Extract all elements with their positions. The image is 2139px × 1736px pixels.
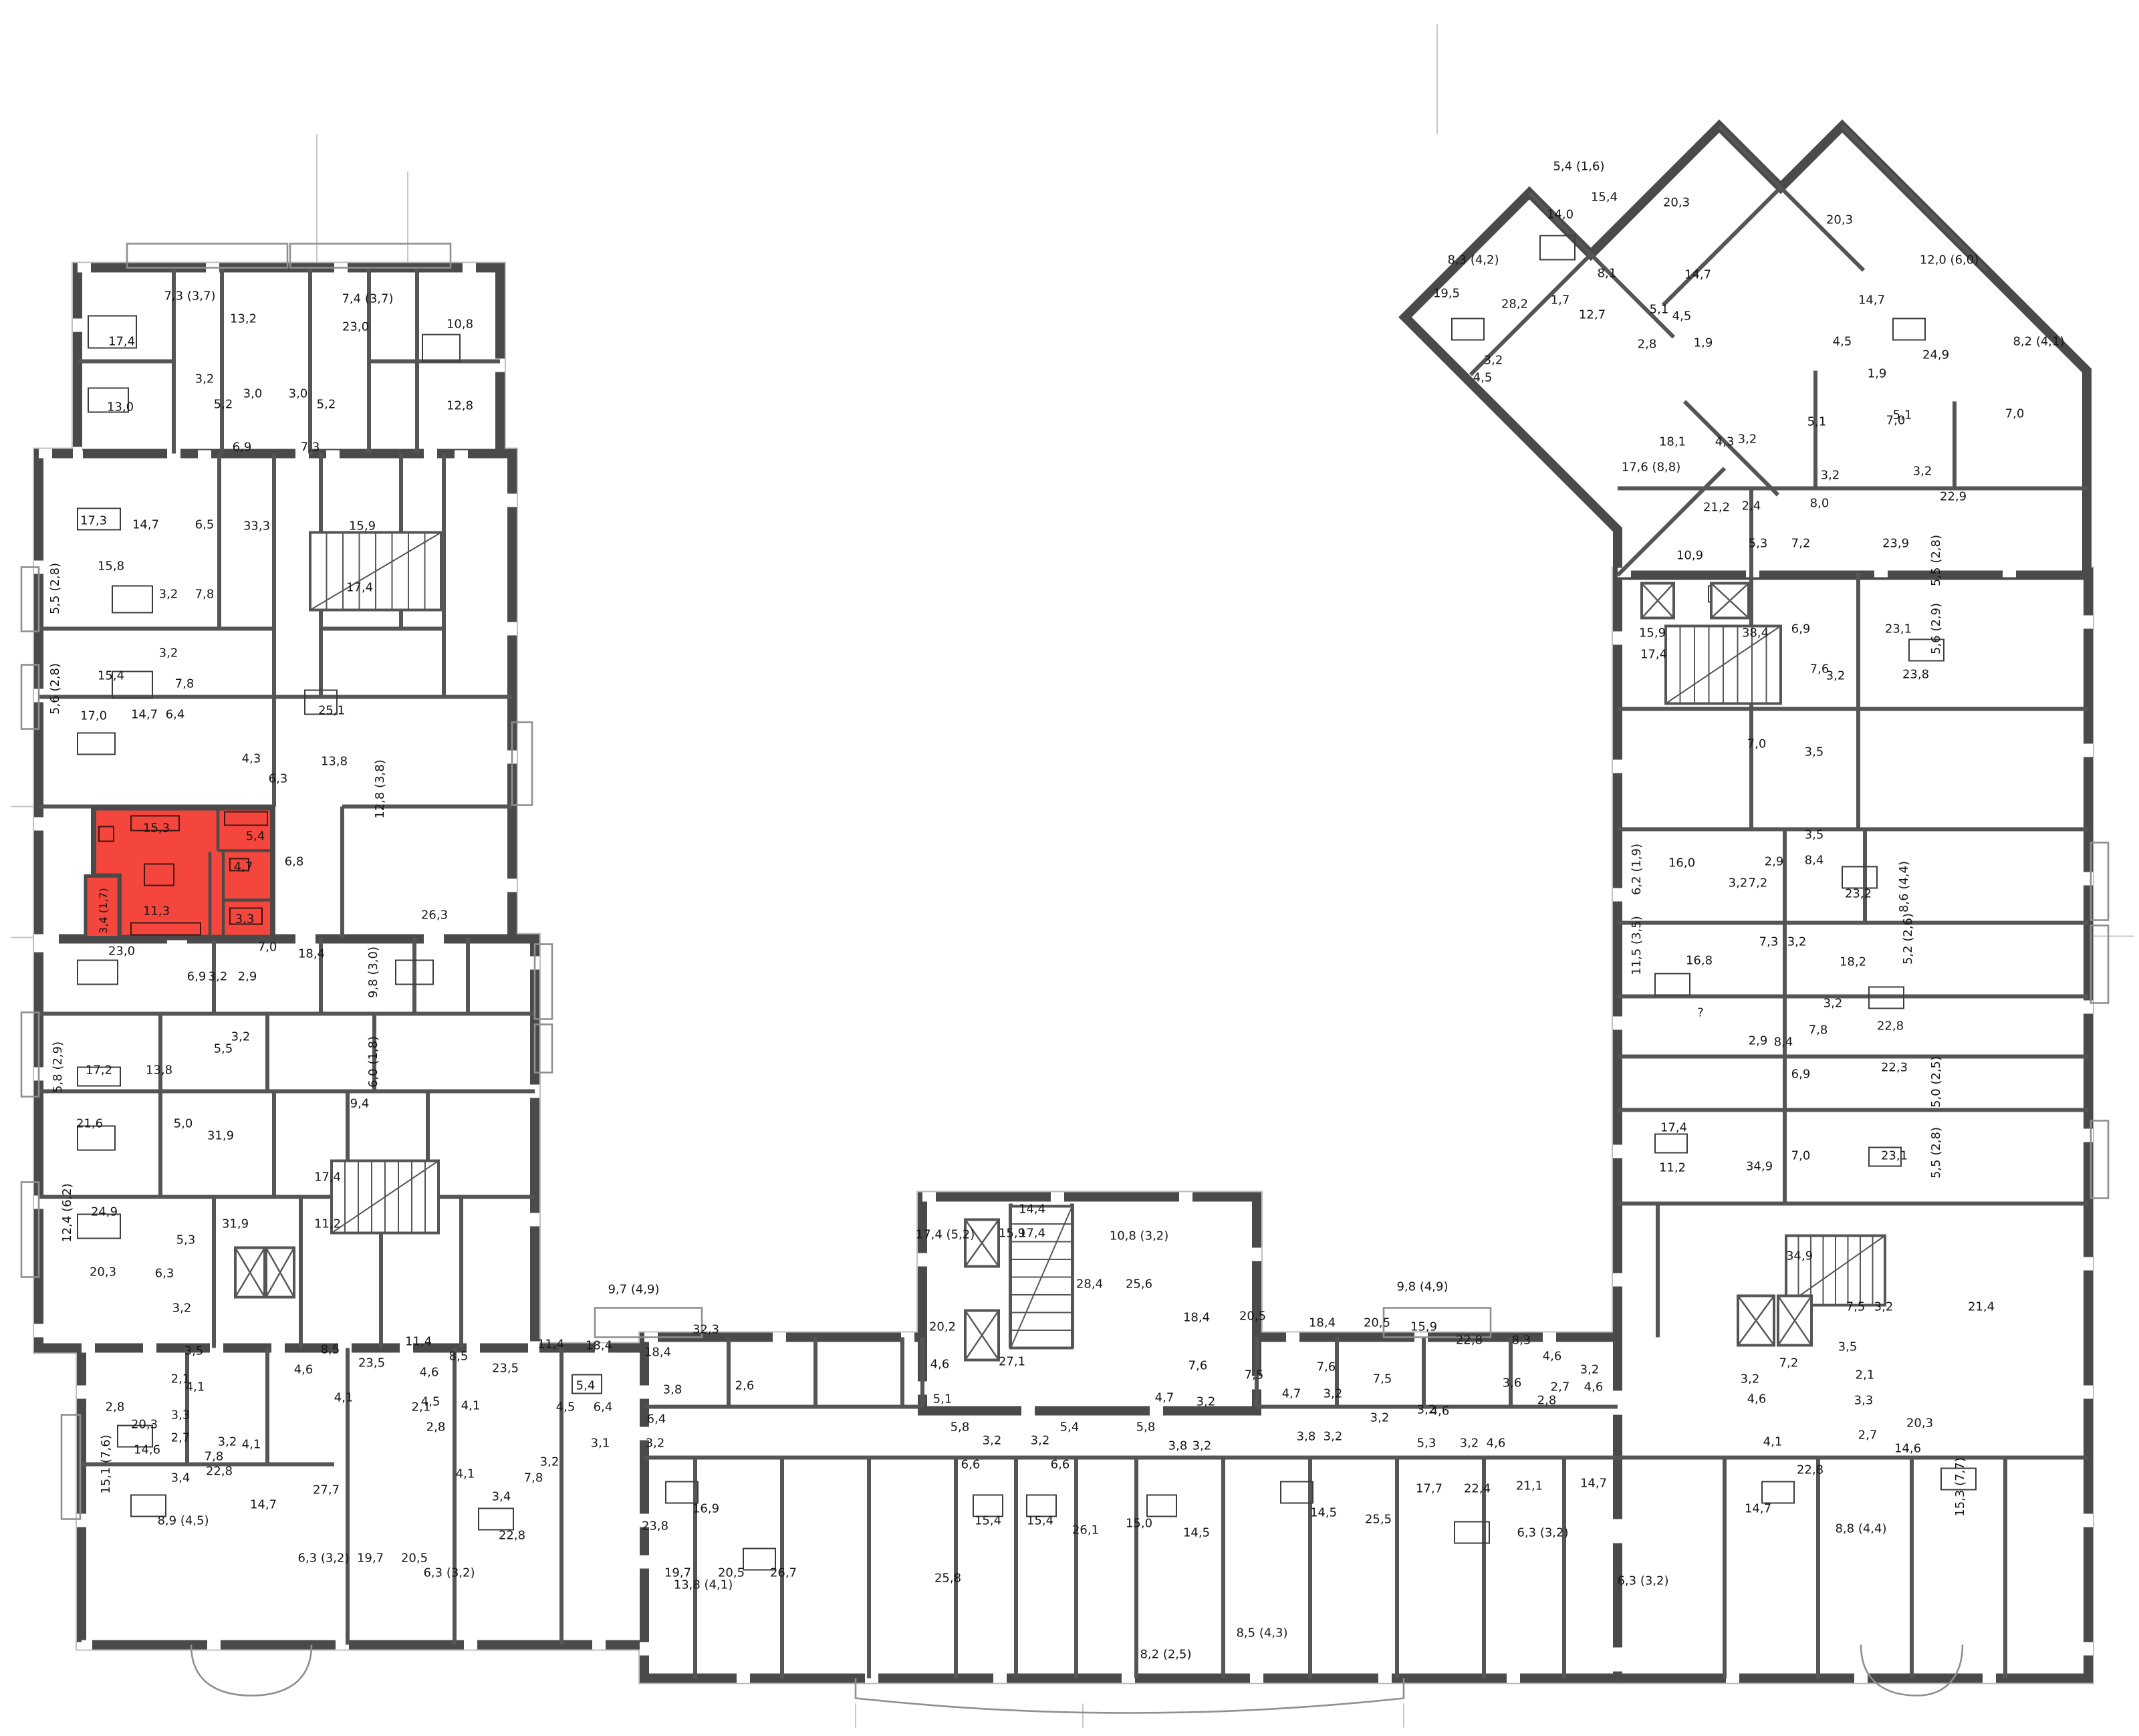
area-label: 11,4 [537, 1338, 564, 1352]
area-label: 15,8 [98, 560, 124, 574]
area-label: 23,2 [1845, 887, 1872, 901]
area-label: 5,3 [176, 1233, 196, 1247]
area-label: 2,1 [412, 1400, 431, 1414]
area-label: 7,0 [258, 941, 277, 955]
area-label: 14,7 [250, 1498, 277, 1512]
area-label: 14,7 [1684, 268, 1711, 282]
area-label: 5,0 [174, 1117, 193, 1131]
area-label: 17,2 [86, 1064, 112, 1078]
area-label: 6,4 [594, 1400, 613, 1414]
area-label: 26,7 [770, 1566, 797, 1580]
area-label: 4,6 [1430, 1404, 1450, 1418]
area-label: 3,2 [1580, 1363, 1600, 1377]
elevator-shaft [1778, 1296, 1811, 1346]
area-label: 5,4 [576, 1379, 596, 1393]
area-label: 7,6 [1317, 1360, 1336, 1374]
area-label: 6,9 [1791, 1068, 1811, 1082]
area-label: 4,6 [294, 1363, 313, 1377]
area-label: 32,3 [693, 1323, 719, 1337]
area-label: 2,9 [238, 970, 257, 984]
area-label: 21,1 [1516, 1479, 1543, 1493]
area-label: 17,3 [80, 514, 107, 528]
area-label: 3,2 [209, 970, 228, 984]
area-label: 6,2 (1,9) [1630, 844, 1644, 895]
area-label: 10,8 [447, 318, 473, 332]
area-label: 17,6 (8,8) [1622, 461, 1680, 475]
area-label: 2,7 [1858, 1429, 1878, 1443]
area-label: 4,6 [1543, 1350, 1562, 1364]
area-label: 6,3 (3,2) [1617, 1574, 1668, 1588]
area-label: 5,4 [1060, 1420, 1080, 1435]
area-label: 12,8 [447, 399, 473, 413]
area-label: 21,2 [1703, 501, 1730, 515]
area-label: 4,3 [242, 752, 261, 766]
area-label: 3,2 [1324, 1430, 1343, 1444]
area-label: 15,9 [1410, 1320, 1437, 1334]
area-label: 23,0 [342, 320, 369, 334]
area-label: 26,3 [421, 908, 448, 922]
area-label: 12,8 (3,8) [373, 759, 387, 818]
elevator-shaft [965, 1220, 999, 1267]
area-label: 4,5 [1833, 335, 1852, 349]
area-label: 23,8 [642, 1519, 668, 1533]
area-label: 13,2 [230, 312, 257, 326]
highlight-room-label: 3,3 [235, 912, 255, 926]
highlight-room-label: 15,3 [143, 822, 170, 836]
area-label: 14,7 [1858, 293, 1885, 307]
area-label: 7,8 [205, 1450, 224, 1464]
area-label: 22,8 [1877, 1019, 1904, 1033]
elevator-shaft [1711, 584, 1749, 618]
area-label: 3,2 [646, 1437, 665, 1451]
elevator-shaft [965, 1311, 999, 1360]
area-label: 2,8 [106, 1400, 125, 1414]
area-label: 4,1 [186, 1380, 205, 1394]
area-label: 13,8 [146, 1064, 172, 1078]
area-label: 3,1 [591, 1437, 610, 1451]
area-label: 17,4 [1019, 1227, 1045, 1241]
area-label: 22,9 [1940, 490, 1967, 504]
area-label: 17,0 [80, 709, 107, 723]
area-label: 7,0 [2005, 407, 2025, 421]
area-label: 7,4 (3,7) [342, 292, 393, 306]
area-label: 3,2 [1821, 469, 1840, 483]
area-label: 7,3 [301, 441, 320, 455]
area-label: 5,5 (2,8) [48, 563, 62, 614]
area-label: 3,2 [1324, 1387, 1343, 1401]
area-label: 2,8 [1537, 1394, 1557, 1408]
area-label: 23,8 [1902, 668, 1929, 682]
area-label: 7,0 [1747, 737, 1767, 751]
area-label: 28,4 [1076, 1277, 1103, 1291]
area-label: 3,2 [1197, 1395, 1216, 1409]
area-label: 7,0 [1791, 1149, 1811, 1163]
area-label: 17,4 [346, 581, 373, 595]
area-label: 3,2 [983, 1434, 1002, 1448]
area-label: 5,8 [1136, 1420, 1156, 1435]
area-label: 9,7 (4,9) [608, 1283, 659, 1297]
area-label: 3,2 [218, 1435, 237, 1449]
area-label: 4,1 [1763, 1435, 1783, 1449]
area-label: 5,6 (2,8) [48, 663, 62, 715]
area-label: 8,8 (4,4) [1835, 1522, 1886, 1536]
area-label: 5,4 (1,6) [1553, 160, 1604, 174]
area-label: 6,9 [1791, 622, 1811, 636]
area-label: 7,5 [1373, 1372, 1392, 1386]
area-label: 4,7 [1282, 1387, 1301, 1401]
area-label: 20,3 [1906, 1416, 1933, 1431]
area-label: 6,5 [195, 518, 215, 532]
area-label: 17,4 [108, 335, 135, 349]
area-label: 16,9 [693, 1502, 719, 1516]
area-label: 12,0 (6,0) [1920, 253, 1979, 267]
area-label: 3,3 [171, 1408, 191, 1422]
area-label: 20,5 [1364, 1316, 1390, 1330]
area-label: 3,3 [1854, 1394, 1874, 1408]
area-label: 3,2 [1192, 1439, 1212, 1453]
area-label: 3,2 [1738, 432, 1757, 447]
area-label: 6,9 [187, 970, 207, 984]
elevator-shaft [266, 1248, 294, 1297]
area-label: 8,1 [1598, 267, 1617, 281]
area-label: 18,1 [1659, 435, 1686, 449]
elevator-shaft [1738, 1296, 1774, 1346]
area-label: 2,9 [1765, 855, 1784, 869]
area-label: 4,6 [1487, 1437, 1506, 1451]
area-label: 16,8 [1686, 954, 1713, 968]
area-label: 3,4 [492, 1490, 511, 1504]
area-label: 4,7 [1155, 1391, 1174, 1405]
area-label: 31,9 [222, 1217, 249, 1231]
area-label: 23,1 [1881, 1149, 1908, 1163]
area-label: 33,3 [243, 519, 270, 533]
area-label: 8,5 [321, 1343, 340, 1357]
area-label: 5,3 [1749, 537, 1768, 551]
area-label: 14,6 [134, 1443, 160, 1457]
area-label: 8,3 [1512, 1334, 1531, 1348]
area-label: 5,6 (2,9) [1929, 603, 1943, 654]
area-label: 2,4 [1742, 499, 1761, 513]
area-label: 5,2 (2,6) [1901, 913, 1915, 965]
area-label: 5,1 [1807, 415, 1827, 429]
area-label: 1,7 [1551, 293, 1570, 307]
area-label: 3,5 [1805, 745, 1824, 759]
area-label: 4,3 [1715, 435, 1735, 449]
elevator-shaft [235, 1248, 265, 1297]
area-label: 5,0 (2,5) [1929, 1056, 1943, 1108]
area-label: 23,5 [358, 1356, 385, 1370]
floor-plan-svg: 15,311,35,44,73,33,4 (1,7)7,3 (3,7)13,27… [0, 0, 2139, 1736]
area-label: 10,8 (3,2) [1110, 1229, 1168, 1243]
area-label: 11,2 [1659, 1161, 1686, 1175]
area-label: 4,6 [930, 1358, 950, 1372]
area-label: 17,4 [1640, 648, 1667, 662]
area-label: 7,8 [1809, 1023, 1828, 1037]
area-label: 15,0 [1126, 1517, 1152, 1531]
area-label: 2,7 [1551, 1380, 1570, 1394]
area-label: 7,2 [1749, 876, 1768, 890]
area-label: 3,8 [663, 1383, 682, 1397]
area-label: 21,4 [1968, 1300, 1995, 1314]
area-label: 5,8 (2,9) [51, 1041, 65, 1093]
area-label: 13,8 [321, 755, 348, 769]
area-label: 1,9 [1868, 367, 1887, 381]
area-label: 6,9 [233, 441, 252, 455]
area-label: 38,4 [1742, 626, 1769, 640]
area-label: 20,3 [131, 1418, 158, 1432]
area-label: 3,5 [184, 1344, 204, 1358]
area-label: 20,5 [1239, 1310, 1266, 1324]
area-label: 22,4 [1464, 1482, 1491, 1496]
area-label: 20,5 [401, 1552, 428, 1566]
area-label: 6,3 (3,2) [297, 1552, 349, 1566]
area-label: 5,1 [1650, 303, 1669, 317]
staircase [332, 1161, 438, 1233]
area-label: 25,5 [1365, 1513, 1392, 1527]
area-label: 4,1 [461, 1399, 481, 1413]
area-label: 13,8 (4,1) [674, 1578, 733, 1592]
area-label: 15,9 [349, 519, 376, 533]
highlight-room-label: 5,4 [246, 830, 265, 844]
area-label: 20,3 [1663, 196, 1690, 210]
area-label: 7,3 [1759, 935, 1779, 949]
area-label: 7,2 [1779, 1356, 1799, 1370]
area-label: 14,7 [1745, 1502, 1771, 1516]
area-label: 7,2 [1791, 537, 1811, 551]
area-label: 28,2 [1501, 297, 1528, 312]
highlighted-apartment[interactable]: 15,311,35,44,73,33,4 (1,7) [86, 808, 273, 938]
area-label: 7,5 [1245, 1368, 1264, 1382]
area-label: 4,6 [1747, 1392, 1767, 1406]
area-label: 5,5 (2,8) [1929, 1127, 1943, 1179]
area-label: 22,8 [1456, 1334, 1483, 1348]
area-label: 6,3 [155, 1267, 174, 1281]
area-label: 17,7 [1416, 1482, 1442, 1496]
area-label: 6,3 [269, 772, 288, 786]
area-label: 4,1 [334, 1391, 354, 1405]
area-label: 20,3 [1826, 213, 1853, 227]
area-label: 6,0 (1,8) [366, 1036, 380, 1088]
floor-plan-canvas: 15,311,35,44,73,33,4 (1,7)7,3 (3,7)13,27… [0, 0, 2139, 1736]
area-label: 13,0 [107, 400, 134, 414]
area-label: 14,5 [1183, 1526, 1210, 1540]
area-label: 3,2 [1729, 876, 1748, 890]
area-label: 8,3 (4,2) [1447, 253, 1499, 267]
area-label: 21,6 [76, 1117, 103, 1131]
area-label: 15,9 [1639, 626, 1666, 640]
area-label: 4,5 [556, 1400, 576, 1414]
area-label: 23,0 [108, 945, 135, 959]
area-label: 15,4 [98, 669, 124, 683]
area-label: 8,2 (2,5) [1140, 1648, 1191, 1662]
area-label: 3,2 [1484, 354, 1503, 368]
staircase [310, 533, 441, 610]
area-label: 4,6 [1584, 1380, 1604, 1394]
area-label: 9,8 (4,9) [1396, 1280, 1448, 1294]
area-label: 14,0 [1547, 208, 1574, 222]
area-label: 31,9 [207, 1129, 234, 1143]
area-label: 17,4 [1660, 1121, 1687, 1135]
area-label: 18,4 [1309, 1316, 1336, 1330]
area-label: 3,0 [289, 387, 308, 401]
area-label: 20,2 [929, 1320, 956, 1334]
area-label: 4,5 [1473, 371, 1493, 385]
area-label: 14,4 [1019, 1203, 1045, 1217]
area-label: 12,7 [1579, 308, 1606, 322]
area-label: 25,8 [934, 1572, 961, 1586]
area-label: 4,5 [1672, 309, 1692, 324]
area-label: 15,4 [1027, 1514, 1053, 1528]
area-label: 2,8 [426, 1420, 446, 1435]
highlight-balcony-label: 3,4 (1,7) [97, 888, 110, 933]
area-label: 25,6 [1126, 1277, 1152, 1291]
area-label: 3,2 [1826, 669, 1846, 683]
area-label: 5,1 [933, 1392, 953, 1406]
area-label: 8,0 [1810, 497, 1830, 511]
area-label: 6,3 (3,2) [423, 1566, 475, 1580]
area-label: 9,8 (3,0) [366, 947, 380, 998]
area-label: 22,8 [499, 1529, 525, 1543]
area-label: 2,1 [1856, 1368, 1875, 1382]
elevator-shaft [1642, 584, 1674, 618]
area-label: 15,4 [975, 1514, 1001, 1528]
area-label: 17,4 [314, 1170, 341, 1185]
area-label: 6,6 [961, 1458, 981, 1472]
area-label: 6,4 [166, 708, 185, 722]
area-label: 34,9 [1786, 1249, 1813, 1263]
area-label: 8,5 [449, 1350, 469, 1364]
area-label: 26,1 [1072, 1523, 1099, 1537]
area-label: 11,5 (3,5) [1630, 916, 1644, 975]
area-label: 3,2 [1031, 1434, 1050, 1448]
area-label: 8,9 (4,5) [157, 1514, 209, 1528]
area-label: 3,2 [1874, 1300, 1894, 1314]
area-label: 8,2 (4,1) [2013, 335, 2064, 349]
area-label: 5,5 (2,8) [1929, 535, 1943, 586]
area-label: 19,5 [1433, 287, 1460, 301]
area-label: 7,8 [524, 1471, 543, 1485]
area-label: 14,7 [1580, 1477, 1607, 1491]
area-label: 3,2 [172, 1301, 192, 1316]
area-label: 18,4 [298, 947, 325, 961]
area-label: 18,4 [644, 1346, 671, 1360]
area-label: 3,2 [1787, 935, 1807, 949]
area-label: 7,8 [195, 588, 215, 602]
area-label: 4,1 [456, 1467, 475, 1481]
area-label: 5,5 [214, 1042, 233, 1056]
area-label: 23,5 [492, 1362, 519, 1376]
area-label: 3,2 [159, 588, 178, 602]
area-label: 22,3 [1881, 1061, 1908, 1075]
area-label: 11,2 [314, 1217, 341, 1231]
area-label: 4,6 [420, 1366, 439, 1380]
area-label: 23,1 [1885, 622, 1912, 636]
area-label: 5,2 [317, 398, 336, 412]
area-label: 16,0 [1668, 856, 1695, 870]
area-label: 17,4 (5,2) [916, 1228, 975, 1242]
area-label: 2,8 [1638, 338, 1657, 352]
area-label: 14,6 [1894, 1442, 1921, 1456]
area-label: 24,9 [91, 1205, 118, 1219]
area-label: 18,4 [586, 1339, 612, 1353]
building-block [1618, 573, 2088, 1679]
area-label: ? [1697, 1006, 1704, 1020]
area-label: 3,2 [540, 1455, 559, 1469]
area-label: 25,1 [318, 704, 345, 718]
area-label: 6,3 (3,2) [1517, 1526, 1568, 1540]
area-label: 1,9 [1694, 336, 1713, 350]
area-label: 10,9 [1676, 549, 1703, 563]
area-label: 3,0 [243, 387, 263, 401]
area-label: 22,8 [206, 1465, 233, 1479]
area-label: 27,7 [313, 1483, 340, 1497]
area-label: 4,1 [242, 1438, 261, 1452]
area-label: 5,8 [951, 1420, 970, 1435]
area-label: 22,8 [1797, 1463, 1823, 1477]
area-label: 7,8 [175, 677, 195, 691]
area-label: 3,2 [1913, 465, 1932, 479]
area-label: 18,4 [1183, 1311, 1210, 1325]
area-label: 3,2 [1741, 1372, 1760, 1386]
area-label: 8,4 [1805, 854, 1824, 868]
area-label: 3,5 [1838, 1340, 1858, 1354]
highlight-room-label: 4,7 [234, 860, 253, 874]
area-label: 7,5 [1846, 1300, 1866, 1314]
highlight-room-label: 11,3 [143, 904, 170, 918]
area-label: 23,9 [1882, 537, 1909, 551]
area-label: 14,5 [1310, 1506, 1337, 1520]
area-label: 7,3 (3,7) [164, 289, 215, 303]
area-label: 6,6 [1051, 1458, 1070, 1472]
area-label: 3,6 [1503, 1376, 1522, 1390]
area-label: 2,9 [1749, 1034, 1768, 1048]
area-label: 2,6 [735, 1379, 755, 1393]
area-label: 14,7 [132, 518, 159, 532]
area-label: 34,9 [1746, 1160, 1773, 1174]
area-label: 15,3 (7,7) [1953, 1457, 1967, 1516]
area-label: 3,2 [1460, 1437, 1479, 1451]
area-label: 15,4 [1591, 191, 1618, 205]
area-label: 8,5 (4,3) [1236, 1626, 1287, 1640]
area-label: 3,8 [1297, 1430, 1316, 1444]
area-label: 6,8 [285, 855, 304, 869]
area-label: 3,2 [159, 646, 178, 660]
area-label: 18,2 [1840, 955, 1866, 969]
area-label: 5,2 [214, 398, 233, 412]
area-label: 7,6 [1188, 1359, 1208, 1373]
area-label: 14,7 [131, 708, 158, 722]
area-label: 5,1 [1893, 408, 1912, 422]
area-label: 3,2 [195, 372, 215, 386]
area-label: 8,6 (4,4) [1897, 861, 1911, 912]
area-label: 3,4 [171, 1471, 191, 1485]
area-label: 6,4 [647, 1412, 666, 1427]
area-label: 3,2 [231, 1030, 251, 1044]
area-label: 19,7 [357, 1552, 384, 1566]
area-label: 2,7 [171, 1431, 191, 1445]
area-label: 15,1 (7,6) [99, 1435, 113, 1493]
area-label: 3,8 [1168, 1439, 1188, 1453]
area-label: 12,4 (6,2) [60, 1183, 74, 1242]
area-label: 8,4 [1774, 1035, 1793, 1049]
area-label: 24,9 [1922, 348, 1949, 362]
area-label: 11,4 [405, 1335, 432, 1349]
area-label: 9,4 [350, 1097, 370, 1111]
area-label: 20,3 [90, 1265, 116, 1279]
area-label: 3,2 [1823, 997, 1843, 1011]
area-label: 3,5 [1805, 828, 1824, 842]
area-label: 5,3 [1417, 1437, 1436, 1451]
